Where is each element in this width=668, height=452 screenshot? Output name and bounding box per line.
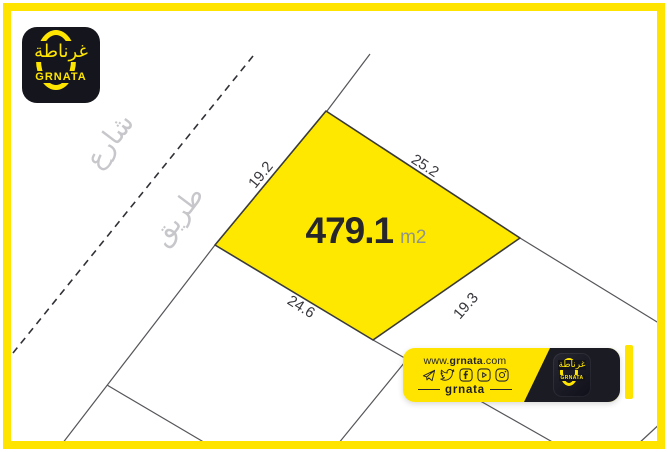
- plot-area-value: 479.1: [306, 210, 394, 252]
- boundary-line-left-down: [62, 245, 215, 444]
- plot-area-unit: m2: [400, 227, 426, 249]
- logo-arabic-wordmark: غرناطة: [22, 41, 100, 63]
- plot-area-label: 479.1 m2: [306, 210, 427, 252]
- logo-arabic-text: غرناطة: [558, 360, 587, 370]
- social-icons-row: [422, 368, 509, 383]
- url-name: grnata: [450, 355, 483, 367]
- boundary-line-under-banner: [338, 357, 409, 444]
- logo-latin-wordmark: GRNATA: [553, 375, 591, 381]
- twitter-icon: [440, 369, 455, 382]
- instagram-icon: [495, 368, 509, 382]
- banner-logo-block: غرناطة GRNATA: [524, 348, 620, 402]
- youtube-icon: [477, 368, 491, 382]
- logo-arabic-text: غرناطة: [32, 41, 90, 62]
- boundary-line-branch: [107, 385, 207, 444]
- telegram-icon: [422, 369, 436, 382]
- social-handle-row: grnata: [418, 384, 512, 396]
- banner-side-bar: [625, 345, 633, 399]
- grnata-logo: غرناطة GRNATA: [22, 27, 100, 103]
- banner-contact-block: www.grnata.com: [403, 348, 527, 402]
- handle-divider-left: [418, 389, 440, 391]
- social-handle: grnata: [445, 384, 485, 396]
- logo-arabic-wordmark: غرناطة: [553, 360, 591, 370]
- logo-latin-text: GRNATA: [33, 71, 88, 83]
- website-url: www.grnata.com: [424, 355, 507, 367]
- boundary-line-corner: [637, 420, 664, 445]
- boundary-line-right: [520, 238, 662, 325]
- plot-listing-image: شارع طريق 19.2 25.2 24.6 19.3 479.1 m2 غ…: [0, 0, 668, 452]
- logo-latin-wordmark: GRNATA: [22, 71, 100, 83]
- handle-divider-right: [490, 389, 512, 391]
- url-suffix: .com: [483, 355, 507, 367]
- facebook-icon: [459, 368, 473, 382]
- logo-latin-text: GRNATA: [559, 375, 584, 381]
- grnata-logo-small: غرناطة GRNATA: [553, 353, 591, 397]
- footer-banner: www.grnata.com: [403, 348, 620, 402]
- url-prefix: www.: [424, 355, 450, 367]
- boundary-line-top-stub: [327, 54, 370, 111]
